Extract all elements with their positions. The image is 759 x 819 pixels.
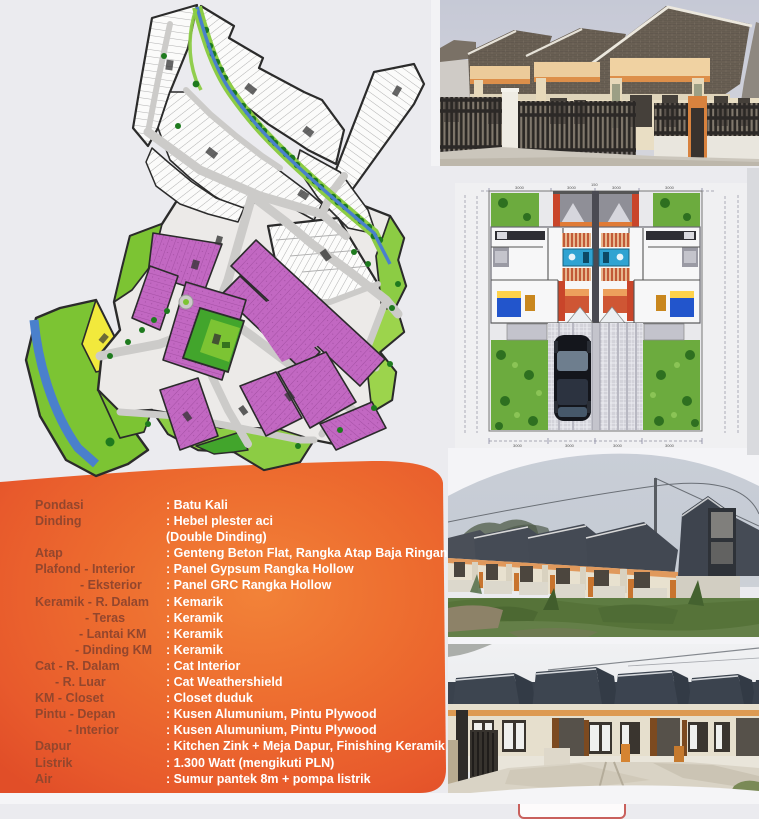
svg-text:3000: 3000 — [515, 185, 525, 190]
svg-text:150: 150 — [591, 183, 598, 187]
svg-text:3000: 3000 — [665, 185, 675, 190]
svg-text:3000: 3000 — [567, 185, 577, 190]
svg-text:3000: 3000 — [612, 185, 622, 190]
